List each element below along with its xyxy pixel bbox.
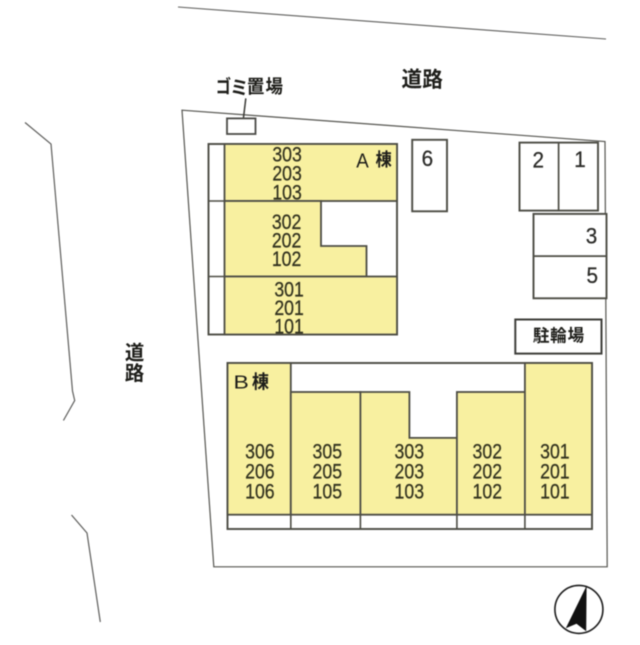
svg-text:1: 1 bbox=[574, 147, 586, 172]
svg-text:6: 6 bbox=[422, 146, 434, 171]
svg-text:A: A bbox=[356, 151, 369, 173]
svg-text:105: 105 bbox=[313, 481, 343, 504]
svg-text:3: 3 bbox=[586, 223, 598, 248]
svg-text:106: 106 bbox=[245, 481, 275, 504]
svg-text:101: 101 bbox=[540, 481, 570, 504]
svg-text:103: 103 bbox=[395, 481, 425, 504]
svg-text:102: 102 bbox=[473, 481, 503, 504]
svg-text:102: 102 bbox=[272, 248, 302, 271]
svg-text:5: 5 bbox=[586, 263, 598, 288]
svg-text:B: B bbox=[234, 371, 249, 392]
svg-text:103: 103 bbox=[272, 181, 302, 204]
svg-text:2: 2 bbox=[533, 148, 545, 173]
svg-text:101: 101 bbox=[274, 315, 304, 338]
